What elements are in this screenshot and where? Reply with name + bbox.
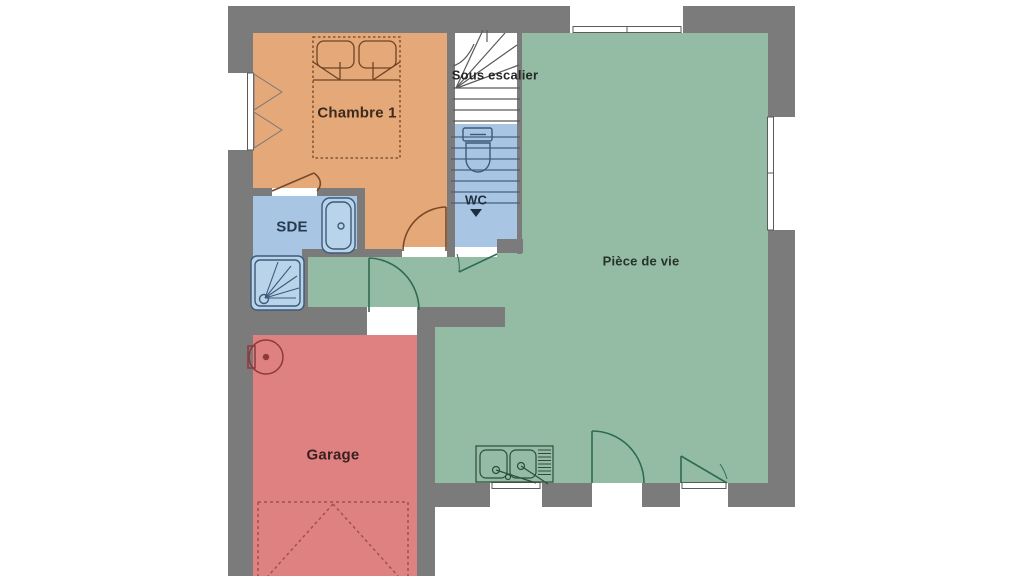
room-label-piece-de-vie: Pièce de vie xyxy=(603,254,680,269)
floor-plan: Chambre 1 SDE WC Sous escalier Pièce de … xyxy=(0,0,1024,576)
floor-plan-drawing xyxy=(0,0,1024,576)
window-top-piece-de-vie xyxy=(570,6,683,33)
window-kitchen xyxy=(490,483,542,508)
room-label-wc: WC xyxy=(465,193,487,208)
room-label-sde: SDE xyxy=(276,219,307,236)
wc-direction-arrow xyxy=(470,209,482,217)
bathtub xyxy=(322,198,355,253)
window-french-door xyxy=(680,483,728,508)
window-right-piece-de-vie xyxy=(768,117,796,230)
room-label-garage: Garage xyxy=(307,447,360,464)
room-label-chambre1: Chambre 1 xyxy=(317,105,396,122)
room-label-sous-escalier: Sous escalier xyxy=(452,68,538,83)
shower-tray xyxy=(251,256,304,310)
